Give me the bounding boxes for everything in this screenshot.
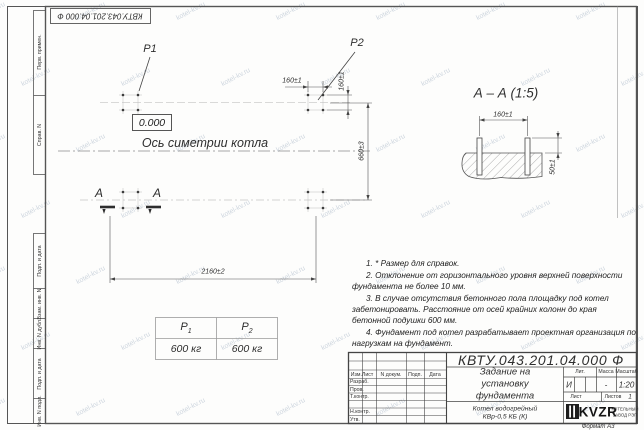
col-header-n-dokum: N докум. xyxy=(381,372,402,378)
frame-label-podp-data-2: Подп. и дата xyxy=(37,358,43,389)
masshtab-header: Масштаб xyxy=(615,369,637,375)
notes-block: 1. * Размер для справок. 2. Отклонение о… xyxy=(352,257,636,351)
load-table-header-p1: P1 xyxy=(180,321,191,335)
product-name-line-1: Котел водогрейный xyxy=(473,406,538,413)
massa-header: Масса xyxy=(598,369,613,375)
note-2: 2. Отклонение от горизонтального уровня … xyxy=(352,271,636,293)
listov-value: 1 xyxy=(628,393,632,400)
col-header-data: Дата xyxy=(429,372,441,378)
dim-plan-length: 2160±2 xyxy=(201,269,224,276)
lit-header: Лит. xyxy=(575,369,585,375)
dim-section-bolt-spacing: 160±1 xyxy=(493,112,512,119)
massa-value: - xyxy=(605,380,608,389)
frame-label-sprav-n: Справ. N xyxy=(37,124,43,146)
load-table-value-p1: 600 кг xyxy=(171,343,202,355)
frame-label-inv-podl: Инв. N подл. xyxy=(37,395,43,426)
plan-view xyxy=(58,52,372,283)
frame-label-vzam-inv: Взам. инв. N xyxy=(37,288,43,319)
dim-plan-width: 660±3 xyxy=(359,141,366,160)
drawing-title-line-1: Задание на xyxy=(480,367,531,378)
load-point-p1-label: P1 xyxy=(143,43,156,55)
row-label-nkontr: Н.контр. xyxy=(350,409,370,415)
col-header-izm-list: Изм.Лист xyxy=(351,372,373,378)
level-mark: 0.000 xyxy=(132,114,172,131)
title-block-doc-number: КВТУ.043.201.04.000 Ф xyxy=(458,352,624,368)
top-stamp-doc-number: КВТУ.043.201.04.000 Ф xyxy=(57,12,142,21)
symmetry-axis-label: Ось симетрии котла xyxy=(142,136,268,150)
col-header-podp: Подп. xyxy=(408,372,422,378)
anchor-bolt-right xyxy=(525,138,530,175)
frame-label-inv-dubl: Инв. N дубл. xyxy=(37,318,43,349)
row-label-tkontr: Т.контр. xyxy=(350,394,369,400)
masshtab-value: 1:20 xyxy=(619,380,635,389)
row-label-razrab: Разраб. xyxy=(350,379,369,385)
logo-sub-line-1: КОТЕЛЬНЫЙ xyxy=(612,406,639,411)
frame-label-podp-data-1: Подп. и дата xyxy=(37,245,43,276)
anchor-bolt-left xyxy=(477,138,482,175)
load-point-p2-label: P2 xyxy=(350,37,363,49)
product-name-line-2: КВр-0,5 КБ (К) xyxy=(483,414,528,421)
row-label-prov: Пров. xyxy=(350,387,364,393)
drawing-title-line-2: установку xyxy=(481,379,528,390)
section-letter-left: А xyxy=(95,186,103,200)
note-3: 3. В случае отсутствия бетонного пола пл… xyxy=(352,294,636,326)
dim-bolt-spacing-y: 160±1 xyxy=(339,71,346,90)
section-view-title: А – А (1:5) xyxy=(474,86,539,101)
section-letter-right: А xyxy=(153,186,161,200)
drawing-sheet: kotel-kv.rukotel-kv.rukotel-kv.rukotel-k… xyxy=(0,0,644,430)
drawing-title-line-3: фундамента xyxy=(476,391,534,402)
dim-section-bolt-height: 50±1 xyxy=(550,159,557,175)
kvzr-logo-emblem xyxy=(566,404,579,419)
logo-sub-line-2: ЗАВОД РЭП xyxy=(613,412,638,417)
load-table-value-p2: 600 кг xyxy=(232,343,263,355)
list-label: Лист xyxy=(570,394,581,400)
note-4: 4. Фундамент под котел разрабатывает про… xyxy=(352,328,636,350)
load-table-header-p2: P2 xyxy=(241,321,252,335)
frame-label-perv-primen: Перв. примен. xyxy=(37,34,43,69)
lit-value: И xyxy=(566,380,572,389)
note-1: 1. * Размер для справок. xyxy=(352,259,636,270)
dim-bolt-spacing-x: 160±1 xyxy=(282,78,301,85)
listov-label: Листов xyxy=(605,394,622,400)
format-label: Формат А3 xyxy=(582,424,615,430)
row-label-utv: Утв. xyxy=(350,417,360,423)
section-aa-view xyxy=(462,116,562,179)
